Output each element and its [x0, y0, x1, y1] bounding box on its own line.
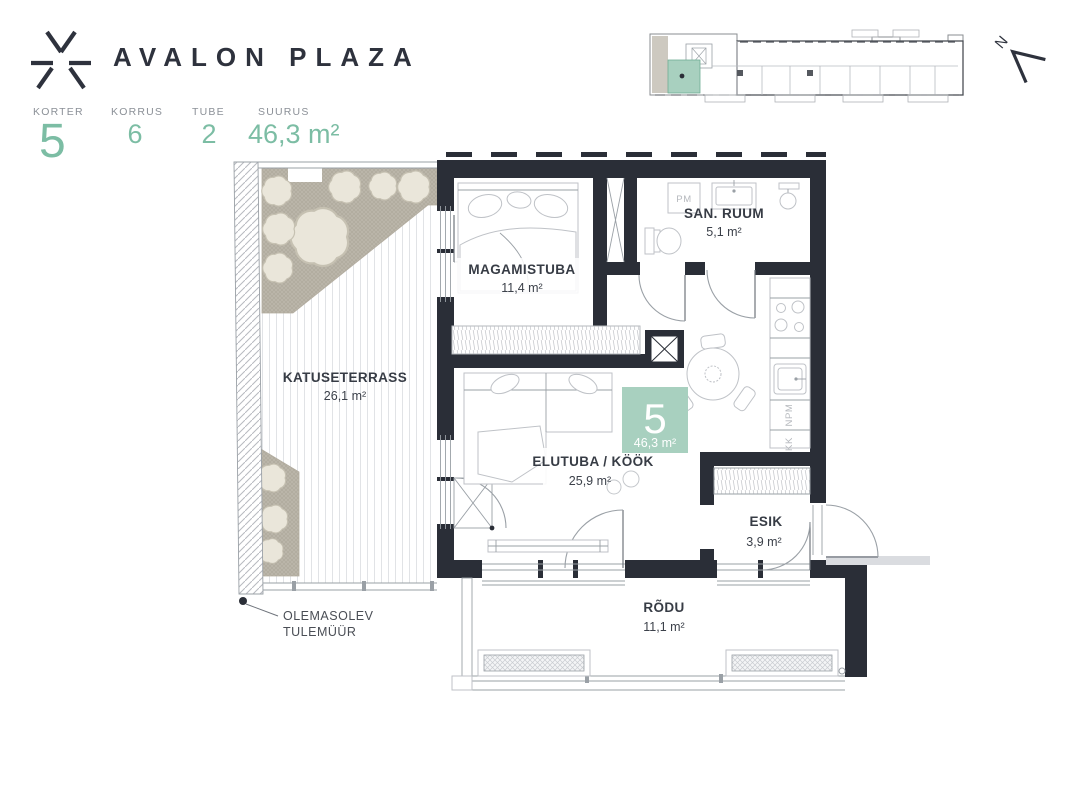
- living-name: ELUTUBA / KÖÖK: [532, 454, 653, 469]
- terrace-railing-top: [258, 162, 437, 168]
- terrace-railing-bottom: [240, 583, 437, 590]
- shaft: [651, 336, 678, 362]
- bathroom-door-swing: [707, 270, 755, 318]
- north-label: N: [992, 33, 1012, 52]
- terrace-notch: [288, 164, 322, 182]
- terrace-area-label: 26,1 m²: [324, 389, 366, 403]
- dishwasher-label: NPM: [784, 404, 795, 427]
- living-balcony-door-swing: [565, 510, 623, 568]
- overview-roof-area: [652, 36, 668, 93]
- bedroom-name: MAGAMISTUBA: [468, 262, 575, 277]
- shower-arm: [779, 183, 799, 189]
- unit-badge-area: 46,3 m²: [634, 436, 676, 450]
- entrance-door: [813, 505, 930, 565]
- closet-cross: [607, 178, 624, 262]
- toilet-bowl: [657, 228, 681, 254]
- fridge-label: KK: [784, 437, 795, 451]
- bedroom-terrace-window: [441, 206, 451, 302]
- toilet-tank: [645, 228, 654, 254]
- terrace-name: KATUSETERRASS: [283, 370, 407, 385]
- hall-wardrobe: [714, 468, 810, 494]
- hall-area-label: 3,9 m²: [746, 535, 781, 549]
- bench: [488, 540, 608, 552]
- unit-badge-number: 5: [643, 395, 666, 442]
- balcony-area-label: 11,1 m²: [643, 620, 684, 634]
- firewall-note-line1: OLEMASOLEV: [283, 609, 374, 623]
- kitchen-counter: NPM KK: [770, 278, 810, 451]
- washing-machine-label: PM: [676, 194, 691, 205]
- bedroom-wardrobe: [452, 326, 640, 354]
- floor-plan-canvas: N: [0, 0, 1066, 800]
- balcony-elements: [452, 578, 845, 690]
- north-arrow-icon: N: [985, 25, 1045, 82]
- unit-badge: 5 46,3 m²: [622, 387, 688, 453]
- stove-burner: [777, 304, 786, 313]
- bedroom-area-label: 11,4 m²: [501, 281, 542, 295]
- firewall-note-line2: TULEMÜÜR: [283, 625, 356, 639]
- firewall-note: OLEMASOLEV TULEMÜÜR: [239, 597, 374, 639]
- living-area-label: 25,9 m²: [569, 474, 611, 488]
- balcony-name: RÕDU: [643, 600, 684, 615]
- roof-tick-marks: [446, 152, 826, 157]
- bathroom-name: SAN. RUUM: [684, 206, 764, 221]
- bathroom-area-label: 5,1 m²: [706, 225, 741, 239]
- corridor-door-swing: [639, 275, 685, 321]
- living-folding-door: [454, 478, 506, 530]
- building-overview-map: [650, 30, 963, 102]
- existing-firewall: [234, 162, 263, 594]
- living-terrace-window: [441, 435, 451, 529]
- shower-head: [780, 193, 796, 209]
- brand-logo-icon: [31, 32, 91, 88]
- hall-name: ESIK: [749, 514, 782, 529]
